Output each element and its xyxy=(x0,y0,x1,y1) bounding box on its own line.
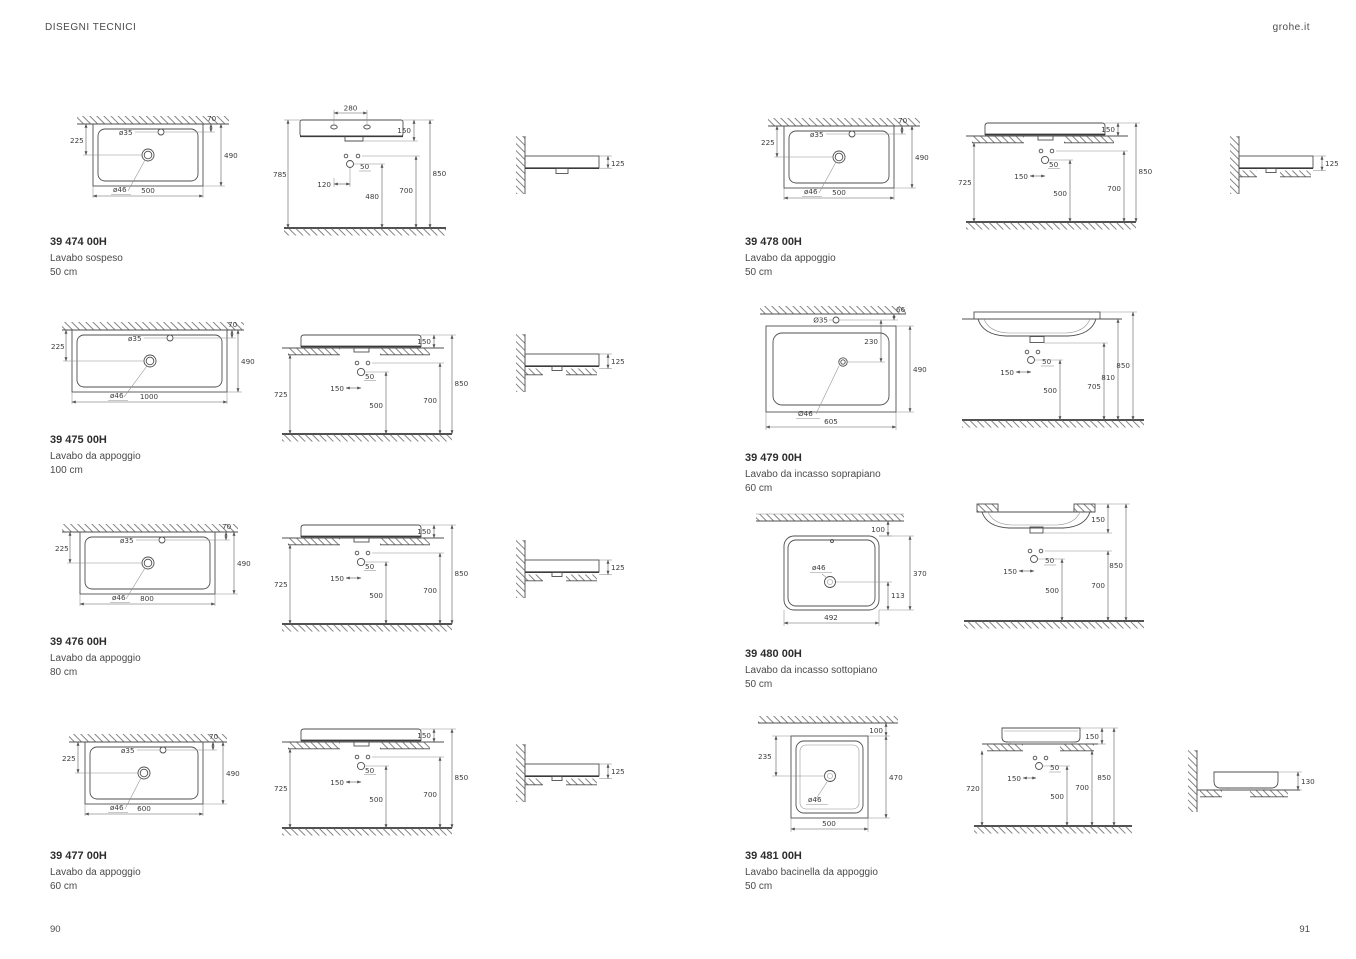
dim-label: 225 xyxy=(55,544,69,553)
dim-label: 150 xyxy=(417,731,431,740)
product-size: 100 cm xyxy=(50,464,141,478)
plan-view-drawing: 100 235 ø46 470 500 xyxy=(748,708,928,858)
dim-label: 500 xyxy=(1050,792,1064,801)
side-dimensions: 125 xyxy=(599,354,625,369)
side-view-drawing: 125 xyxy=(506,328,628,406)
dim-label: 500 xyxy=(369,795,383,804)
dim-label: 500 xyxy=(1043,386,1057,395)
plan-dimensions: Ø35 66 230 490 Ø46 605 xyxy=(766,305,927,430)
dim-label: ø35 xyxy=(119,128,133,137)
front-outline xyxy=(282,525,452,632)
side-view-drawing: 125 xyxy=(1220,130,1342,208)
dim-label: 810 xyxy=(1101,373,1115,382)
dim-label: 100 xyxy=(869,726,883,735)
dim-label: 850 xyxy=(455,773,469,782)
dim-label: 500 xyxy=(1053,189,1067,198)
product-name: Lavabo bacinella da appoggio xyxy=(745,866,878,880)
front-outline xyxy=(282,335,452,442)
plan-dimensions: ø35 225 70 490 ø46 1000 xyxy=(51,320,255,404)
dim-label: 490 xyxy=(241,357,255,366)
dim-label: 500 xyxy=(822,819,836,828)
dim-label: 150 xyxy=(417,527,431,536)
dim-label: 720 xyxy=(966,784,980,793)
side-view-drawing: 125 xyxy=(506,534,628,612)
dim-label: 50 xyxy=(360,162,370,171)
dim-label: 125 xyxy=(611,159,625,168)
plan-outline xyxy=(768,118,920,188)
product-label: 39 474 00H Lavabo sospeso 50 cm xyxy=(50,236,123,280)
dim-label: ø46 xyxy=(808,795,822,804)
product-code: 39 476 00H xyxy=(50,636,141,648)
dim-label: ø46 xyxy=(110,803,124,812)
dim-label: 500 xyxy=(141,186,155,195)
dim-label: 1000 xyxy=(140,392,159,401)
plan-view-drawing: ø35 225 70 490 ø46 500 xyxy=(57,108,242,238)
plan-dimensions: ø35 225 70 490 ø46 800 xyxy=(55,522,251,606)
side-dimensions: 125 xyxy=(599,764,625,779)
product-name: Lavabo sospeso xyxy=(50,252,123,266)
product-code: 39 480 00H xyxy=(745,648,877,660)
product-code: 39 474 00H xyxy=(50,236,123,248)
dim-label: 700 xyxy=(1091,581,1105,590)
dim-label: 50 xyxy=(1050,763,1060,772)
dim-label: 70 xyxy=(207,114,217,123)
dim-label: 66 xyxy=(896,305,906,314)
front-view-drawing: 50 150 500 705 810 850 xyxy=(952,300,1157,435)
dim-label: 700 xyxy=(1107,184,1121,193)
plan-view-drawing: ø35 225 70 490 ø46 1000 xyxy=(46,314,256,439)
dim-label: 725 xyxy=(274,580,288,589)
dim-label: ø46 xyxy=(113,185,127,194)
plan-view-drawing: Ø35 66 230 490 Ø46 605 xyxy=(748,300,933,455)
product-label: 39 475 00H Lavabo da appoggio 100 cm xyxy=(50,434,141,478)
side-dimensions: 125 xyxy=(599,560,625,575)
dim-label: 150 xyxy=(417,337,431,346)
dim-label: 850 xyxy=(455,569,469,578)
dim-label: 50 xyxy=(365,766,375,775)
product-name: Lavabo da appoggio xyxy=(50,866,141,880)
dim-label: 113 xyxy=(891,591,905,600)
dim-label: 500 xyxy=(369,591,383,600)
product-name: Lavabo da appoggio xyxy=(745,252,836,266)
dim-label: 50 xyxy=(1045,556,1055,565)
product-code: 39 478 00H xyxy=(745,236,836,248)
dim-label: Ø35 xyxy=(813,316,828,325)
dim-label: 500 xyxy=(832,188,846,197)
dim-label: 700 xyxy=(423,790,437,799)
dim-label: 70 xyxy=(209,732,219,741)
dim-label: 850 xyxy=(1097,773,1111,782)
product-name: Lavabo da incasso sottopiano xyxy=(745,664,877,678)
product-code: 39 479 00H xyxy=(745,452,881,464)
dim-label: 725 xyxy=(274,784,288,793)
dim-label: 700 xyxy=(1075,783,1089,792)
product-label: 39 481 00H Lavabo bacinella da appoggio … xyxy=(745,850,878,894)
dim-label: ø35 xyxy=(120,536,134,545)
product-code: 39 477 00H xyxy=(50,850,141,862)
dim-label: 50 xyxy=(1049,160,1059,169)
front-outline xyxy=(966,123,1136,230)
dim-label: 700 xyxy=(423,586,437,595)
dim-label: 500 xyxy=(1045,586,1059,595)
dim-label: 150 xyxy=(330,778,344,787)
dim-label: 725 xyxy=(274,390,288,399)
dim-label: 225 xyxy=(51,342,65,351)
dim-label: ø35 xyxy=(128,334,142,343)
dim-label: 280 xyxy=(344,104,358,113)
dim-label: 490 xyxy=(915,153,929,162)
dim-label: 50 xyxy=(365,372,375,381)
dim-label: 125 xyxy=(611,563,625,572)
plan-dimensions: 100 235 ø46 470 500 xyxy=(758,723,903,832)
dim-label: 370 xyxy=(913,569,927,578)
dim-label: 70 xyxy=(222,522,232,531)
product-size: 60 cm xyxy=(50,880,141,894)
dim-label: 850 xyxy=(1109,561,1123,570)
dim-label: 70 xyxy=(898,116,908,125)
front-outline xyxy=(282,729,452,836)
front-view-drawing: 150 50 150 500 700 850 xyxy=(952,496,1157,641)
side-outline xyxy=(516,540,599,598)
dim-label: 150 xyxy=(1003,567,1017,576)
dim-label: 150 xyxy=(1101,125,1115,134)
product-label: 39 477 00H Lavabo da appoggio 60 cm xyxy=(50,850,141,894)
dim-label: 70 xyxy=(228,320,238,329)
product-size: 50 cm xyxy=(745,678,877,692)
dim-label: 500 xyxy=(369,401,383,410)
side-outline xyxy=(1230,136,1313,194)
front-view-drawing: 150 720 50 150 500 700 850 xyxy=(952,706,1152,841)
side-view-drawing: 125 xyxy=(506,130,628,208)
product-label: 39 476 00H Lavabo da appoggio 80 cm xyxy=(50,636,141,680)
side-outline xyxy=(1188,750,1300,812)
plan-view-drawing: ø35 225 70 490 ø46 600 xyxy=(55,726,240,856)
dim-label: 125 xyxy=(1325,159,1339,168)
plan-outline xyxy=(69,734,227,804)
dim-label: 490 xyxy=(913,365,927,374)
dim-label: ø46 xyxy=(110,391,124,400)
plan-outline xyxy=(62,524,238,594)
dim-label: 125 xyxy=(611,357,625,366)
plan-view-drawing: ø35 225 70 490 ø46 800 xyxy=(52,516,252,641)
dim-label: 150 xyxy=(1007,774,1021,783)
product-size: 50 cm xyxy=(50,266,123,280)
front-outline xyxy=(284,120,446,236)
plan-view-drawing: ø35 225 70 490 ø46 500 xyxy=(748,110,933,240)
dim-label: 725 xyxy=(958,178,972,187)
dim-label: 600 xyxy=(137,804,151,813)
dim-label: 700 xyxy=(399,186,413,195)
side-dimensions: 125 xyxy=(599,156,625,168)
dim-label: 470 xyxy=(889,773,903,782)
front-dimensions: 150 50 150 500 700 850 xyxy=(1003,504,1130,621)
dim-label: 850 xyxy=(1139,167,1153,176)
dim-label: 850 xyxy=(1116,361,1130,370)
front-view-drawing: 150 725 50 150 500 700 850 xyxy=(268,710,468,840)
technical-drawing-sheet: DISEGNI TECNICI grohe.it ø35 225 70 490 … xyxy=(0,0,1356,959)
dim-label: ø35 xyxy=(121,746,135,755)
product-name: Lavabo da appoggio xyxy=(50,652,141,666)
dim-label: 150 xyxy=(1014,172,1028,181)
product-label: 39 480 00H Lavabo da incasso sottopiano … xyxy=(745,648,877,692)
dim-label: 490 xyxy=(237,559,251,568)
dim-label: 50 xyxy=(365,562,375,571)
dim-label: 605 xyxy=(824,417,838,426)
product-name: Lavabo da appoggio xyxy=(50,450,141,464)
product-size: 50 cm xyxy=(745,880,878,894)
product-size: 60 cm xyxy=(745,482,881,496)
product-code: 39 481 00H xyxy=(745,850,878,862)
dim-label: 225 xyxy=(70,136,84,145)
product-size: 80 cm xyxy=(50,666,141,680)
plan-outline xyxy=(62,322,244,392)
page-header-left: DISEGNI TECNICI xyxy=(45,22,136,33)
dim-label: 800 xyxy=(140,594,154,603)
dim-label: 150 xyxy=(397,126,411,135)
plan-dimensions: ø35 225 70 490 ø46 600 xyxy=(62,732,240,816)
product-size: 50 cm xyxy=(745,266,836,280)
dim-label: ø35 xyxy=(810,130,824,139)
side-view-drawing: 125 xyxy=(506,738,628,816)
product-name: Lavabo da incasso soprapiano xyxy=(745,468,881,482)
side-outline xyxy=(516,744,599,802)
side-view-drawing: 130 xyxy=(1176,742,1316,822)
plan-outline xyxy=(77,116,229,186)
product-code: 39 475 00H xyxy=(50,434,141,446)
dim-label: 125 xyxy=(611,767,625,776)
page-number-left: 90 xyxy=(50,924,61,935)
dim-label: 225 xyxy=(62,754,76,763)
dim-label: 50 xyxy=(1042,357,1052,366)
plan-view-drawing: 100 ø46 113 370 492 xyxy=(748,506,928,646)
dim-label: 150 xyxy=(1000,368,1014,377)
front-dimensions: 150 720 50 150 500 700 850 xyxy=(966,728,1118,826)
dim-label: 480 xyxy=(365,192,379,201)
front-view-drawing: 280 150 785 50 120 480 700 850 xyxy=(270,100,460,240)
side-dimensions: 130 xyxy=(1278,772,1315,790)
dim-label: 705 xyxy=(1087,382,1101,391)
dim-label: 230 xyxy=(864,337,878,346)
dim-label: 150 xyxy=(1085,732,1099,741)
side-outline xyxy=(516,334,599,392)
dim-label: Ø46 xyxy=(798,409,813,418)
dim-label: 492 xyxy=(824,613,838,622)
dim-label: 850 xyxy=(455,379,469,388)
dim-label: 700 xyxy=(423,396,437,405)
dim-label: 150 xyxy=(1091,515,1105,524)
side-outline xyxy=(516,136,599,194)
side-dimensions: 125 xyxy=(1313,156,1339,171)
page-number-right: 91 xyxy=(1299,924,1310,935)
dim-label: ø46 xyxy=(804,187,818,196)
front-dimensions: 280 150 785 50 120 480 700 850 xyxy=(273,104,447,229)
product-label: 39 479 00H Lavabo da incasso soprapiano … xyxy=(745,452,881,496)
dim-label: 235 xyxy=(758,752,772,761)
dim-label: ø46 xyxy=(812,563,826,572)
dim-label: 100 xyxy=(871,525,885,534)
product-label: 39 478 00H Lavabo da appoggio 50 cm xyxy=(745,236,836,280)
dim-label: 150 xyxy=(330,384,344,393)
dim-label: 130 xyxy=(1301,777,1315,786)
page-header-right: grohe.it xyxy=(1273,22,1310,33)
front-view-drawing: 150 725 50 150 500 700 850 xyxy=(952,104,1152,234)
front-dimensions: 50 150 500 705 810 850 xyxy=(1000,312,1137,420)
dim-label: ø46 xyxy=(112,593,126,602)
dim-label: 490 xyxy=(226,769,240,778)
dim-label: 120 xyxy=(317,180,331,189)
front-view-drawing: 150 725 50 150 500 700 850 xyxy=(268,316,468,446)
plan-outline xyxy=(760,306,906,412)
dim-label: 150 xyxy=(330,574,344,583)
dim-label: 490 xyxy=(224,151,238,160)
dim-label: 785 xyxy=(273,170,287,179)
dim-label: 850 xyxy=(433,169,447,178)
front-view-drawing: 150 725 50 150 500 700 850 xyxy=(268,506,468,636)
dim-label: 225 xyxy=(761,138,775,147)
